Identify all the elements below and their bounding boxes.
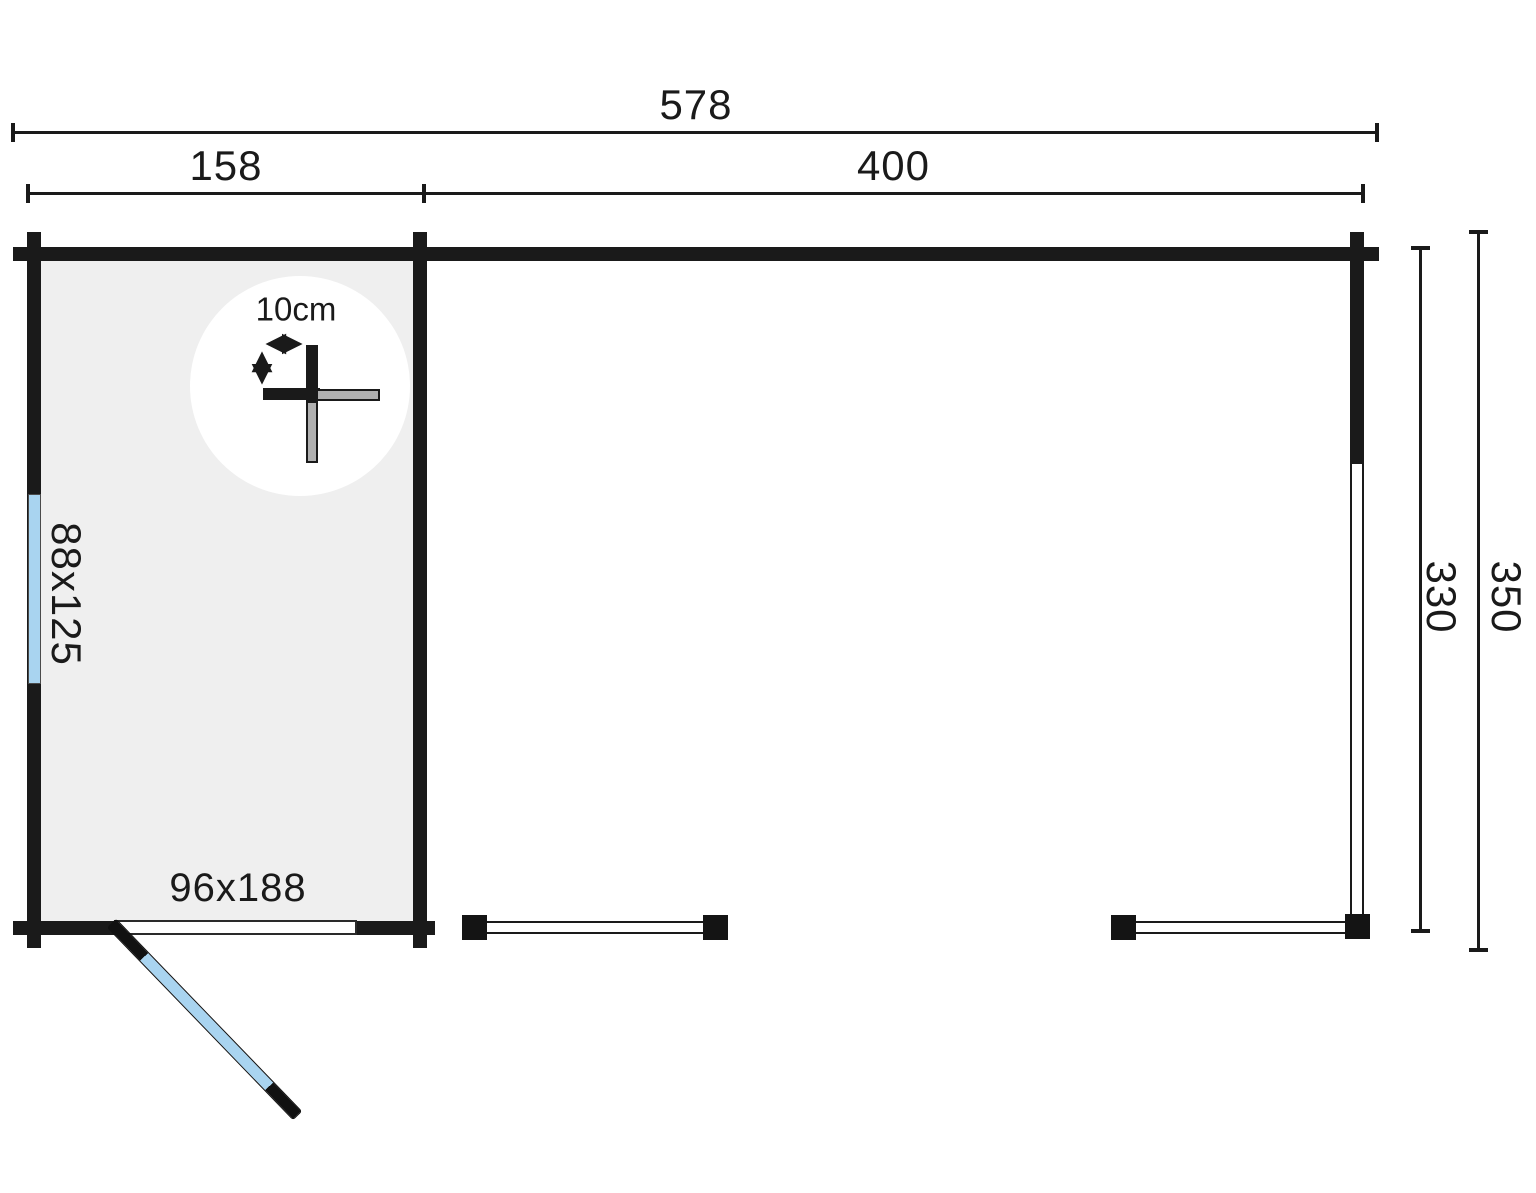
canopy-post (1345, 914, 1370, 939)
dim-tick (1469, 230, 1488, 234)
dim-tick (1411, 929, 1430, 933)
top-wall (13, 247, 1379, 261)
dim-tick (1361, 184, 1365, 203)
dim-tick (1469, 948, 1488, 952)
dim-tick (1411, 246, 1430, 250)
canopy-width-label: 400 (424, 145, 1363, 187)
inner-depth-label: 330 (1420, 560, 1462, 633)
front-railing-left (480, 921, 710, 934)
total-depth-dimension-line (1477, 232, 1480, 952)
total-width-label: 578 (13, 84, 1379, 126)
canopy-post (1111, 915, 1136, 940)
canopy-width-dimension-line (424, 192, 1363, 195)
dim-tick (1375, 123, 1379, 142)
window (28, 494, 41, 684)
door-opening (114, 920, 357, 935)
floor-plan-canvas: 578 158 400 330 350 88x125 96x188 10cm (0, 0, 1536, 1193)
wall-thickness-label: 10cm (256, 293, 337, 326)
dim-tick (26, 184, 30, 203)
front-railing-right (1130, 921, 1355, 934)
window-size-label: 88x125 (45, 522, 87, 666)
cabin-width-dimension-line (28, 192, 424, 195)
right-side-railing (1350, 462, 1364, 923)
detail-log-vertical-gray (306, 401, 318, 463)
total-width-dimension-line (13, 131, 1379, 134)
middle-wall (413, 232, 427, 948)
thickness-arrows-icon (250, 330, 316, 396)
total-depth-label: 350 (1485, 560, 1527, 633)
canopy-post (703, 915, 728, 940)
dim-tick (11, 123, 15, 142)
right-wall (1350, 232, 1364, 464)
canopy-post (462, 915, 487, 940)
cabin-width-label: 158 (28, 145, 424, 187)
door-size-label: 96x188 (130, 868, 346, 908)
detail-log-horizontal-gray (316, 389, 380, 401)
door-leaf (107, 919, 303, 1121)
